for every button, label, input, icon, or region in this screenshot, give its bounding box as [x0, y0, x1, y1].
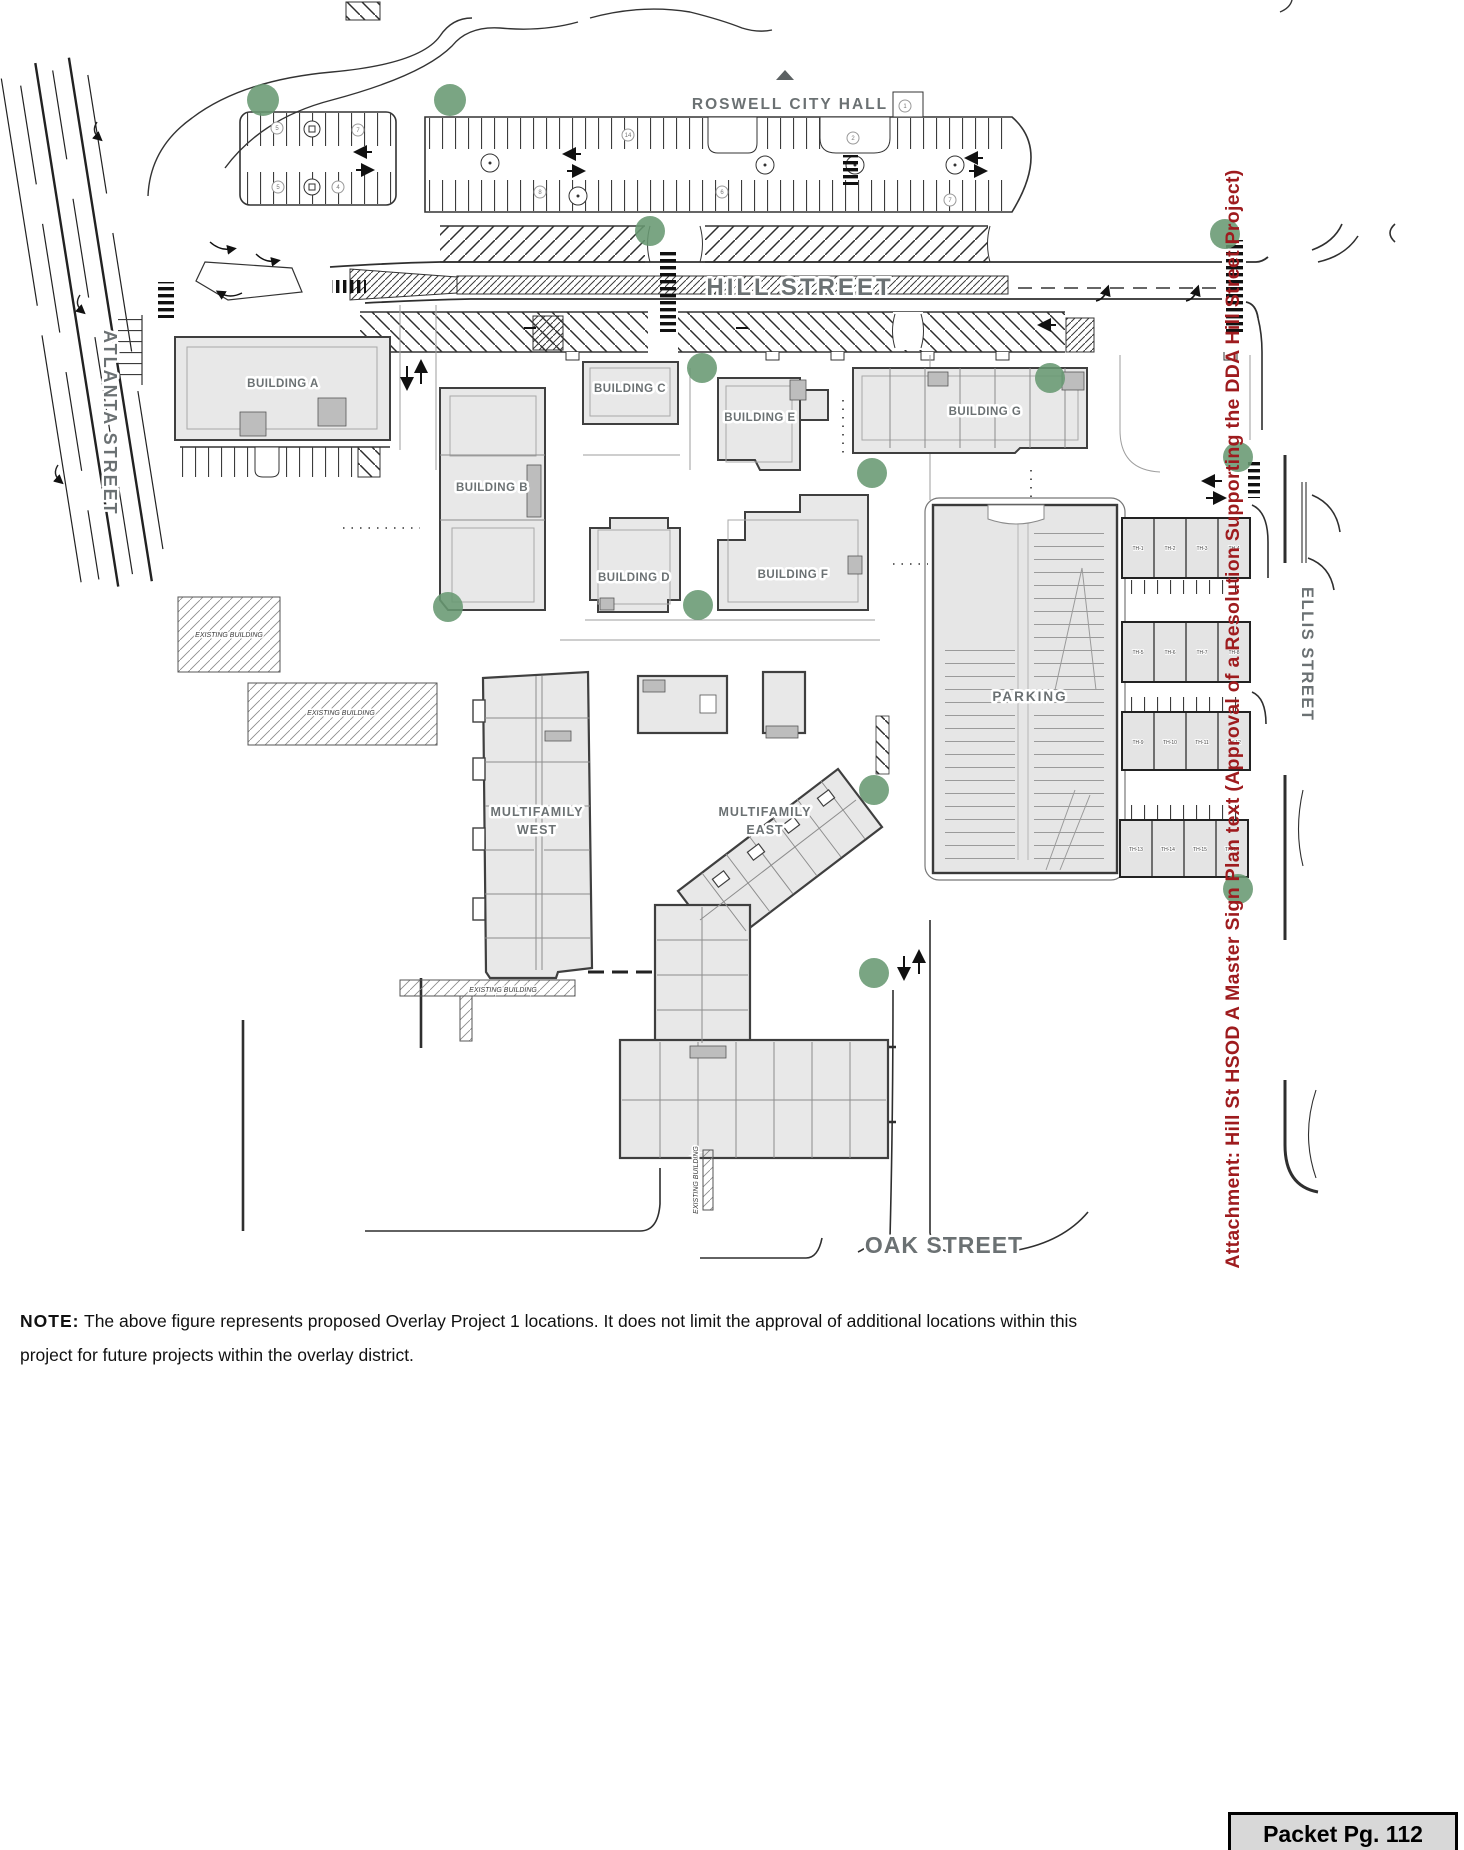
multifamily-east [620, 672, 888, 1158]
building-b-label: BUILDING B [456, 482, 528, 494]
sign-location-marker [857, 458, 887, 488]
sign-location-marker [434, 84, 466, 116]
clubhouse [638, 676, 727, 733]
packet-page: 5 7 5 4 14 2 1 6 8 7 [0, 0, 1464, 1850]
sign-location-marker [1035, 363, 1065, 393]
stall-count: 14 [625, 133, 632, 139]
building-d-label: BUILDING D [598, 572, 670, 584]
atlanta-street-label: ATLANTA STREET [100, 330, 120, 516]
packet-page-badge: Packet Pg. 112 [1228, 1812, 1458, 1850]
sign-location-marker [247, 84, 279, 116]
sign-location-marker [683, 590, 713, 620]
ab-driveway-arrows [407, 366, 421, 384]
sign-location-marker [859, 775, 889, 805]
note-label: NOTE: [20, 1311, 79, 1331]
city-hall-triangle-icon [776, 70, 794, 80]
note-line2: project for future projects within the o… [20, 1345, 414, 1365]
building-f-label: BUILDING F [758, 569, 829, 581]
multifamily-east-label-line1: MULTIFAMILY [719, 805, 812, 819]
townhome-label: TH-15 [1193, 847, 1207, 853]
note-text: NOTE: The above figure represents propos… [20, 1304, 1170, 1372]
sign-location-marker [635, 216, 665, 246]
top-hatch-block [346, 2, 380, 20]
building-e-label: BUILDING E [724, 412, 795, 424]
building-e-footprint [718, 378, 800, 470]
townhome-label: TH-7 [1196, 650, 1207, 656]
note-line1: The above figure represents proposed Ove… [84, 1311, 1077, 1331]
building-f-footprint [718, 495, 868, 610]
sign-location-marker [433, 592, 463, 622]
sign-location-marker [687, 353, 717, 383]
townhome-label: TH-11 [1195, 740, 1209, 746]
townhome-label: TH-6 [1164, 650, 1175, 656]
existing-building-label-1: EXISTING BUILDING [195, 632, 263, 639]
building-g-label: BUILDING G [949, 406, 1022, 418]
sign-location-marker [859, 958, 889, 988]
attachment-sidebar-text: Attachment: Hill St HSOD A Master Sign P… [1212, 82, 1254, 1356]
townhome-label: TH-13 [1129, 847, 1143, 853]
townhome-label: TH-3 [1196, 546, 1207, 552]
townhome-label: TH-1 [1132, 546, 1143, 552]
townhome-label: TH-9 [1132, 740, 1143, 746]
townhome-label: TH-5 [1132, 650, 1143, 656]
city-hall-parking [240, 92, 1031, 212]
ellis-street-label: ELLIS STREET [1298, 587, 1316, 721]
townhome-label: TH-10 [1163, 740, 1177, 746]
multifamily-west-label-line2: WEST [517, 823, 557, 837]
existing-building-label-3: EXISTING BUILDING [469, 987, 537, 994]
existing-building-label-4: EXISTING BUILDING [693, 1146, 700, 1214]
multifamily-east-label-line2: EAST [746, 823, 783, 837]
townhome-label: TH-2 [1164, 546, 1175, 552]
parking-garage-label: PARKING [992, 689, 1067, 704]
hill-street-label: HILL STREET [706, 274, 893, 301]
multifamily-west-label-line1: MULTIFAMILY [491, 805, 584, 819]
building-c-label: BUILDING C [594, 383, 666, 395]
townhome-label: TH-14 [1161, 847, 1175, 853]
building-a-label: BUILDING A [247, 378, 319, 390]
city-hall-label: ROSWELL CITY HALL [692, 96, 888, 113]
oak-street-label: OAK STREET [865, 1232, 1023, 1258]
existing-building-label-2: EXISTING BUILDING [307, 710, 375, 717]
